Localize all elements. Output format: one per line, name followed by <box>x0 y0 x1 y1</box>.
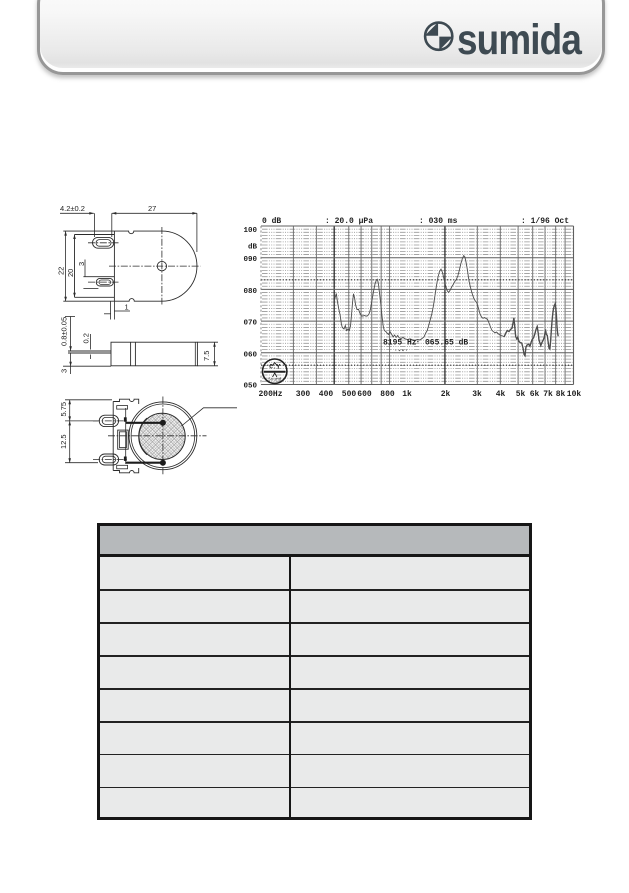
svg-text:20: 20 <box>66 269 75 277</box>
svg-text:400: 400 <box>319 390 334 399</box>
svg-text:7k: 7k <box>543 390 553 399</box>
svg-text:1: 1 <box>125 303 129 312</box>
svg-text:600: 600 <box>357 390 372 399</box>
svg-text:500: 500 <box>342 390 357 399</box>
svg-text:080: 080 <box>243 288 257 296</box>
svg-text:800: 800 <box>380 390 395 399</box>
svg-text:0.8±0.05: 0.8±0.05 <box>60 317 69 346</box>
svg-text:065.65 dB: 065.65 dB <box>425 339 468 348</box>
svg-text:: 1/96 Oct: : 1/96 Oct <box>521 217 569 226</box>
svg-text:10k: 10k <box>567 390 582 399</box>
svg-text:22: 22 <box>57 267 66 275</box>
svg-text:12.5: 12.5 <box>59 434 68 449</box>
svg-text:: 20.0 μPa: : 20.0 μPa <box>325 217 373 226</box>
svg-text:27: 27 <box>148 204 156 213</box>
svg-text:: 030 ms: : 030 ms <box>419 217 458 226</box>
svg-text:090: 090 <box>243 256 257 264</box>
svg-text:·˞˞·: ·˞˞· <box>394 347 408 354</box>
svg-text:C.Y: C.Y <box>269 364 280 371</box>
svg-text:070: 070 <box>243 320 257 328</box>
svg-text:8k: 8k <box>556 390 566 399</box>
svg-text:1k: 1k <box>402 390 412 399</box>
svg-text:100: 100 <box>243 227 257 235</box>
svg-text:5k: 5k <box>516 390 526 399</box>
svg-text:dB: dB <box>248 244 258 252</box>
svg-text:Sound: Sound <box>268 377 282 383</box>
svg-text:3: 3 <box>77 262 86 266</box>
svg-text:2k: 2k <box>441 390 451 399</box>
svg-text:4.2±0.2: 4.2±0.2 <box>60 204 85 213</box>
svg-text:300: 300 <box>296 390 311 399</box>
svg-text:3k: 3k <box>472 390 482 399</box>
svg-text:0 dB: 0 dB <box>262 217 281 226</box>
svg-text:7.5: 7.5 <box>202 351 211 361</box>
svg-text:3: 3 <box>60 369 69 373</box>
svg-text:200Hz: 200Hz <box>258 390 282 399</box>
svg-text:6k: 6k <box>530 390 540 399</box>
svg-text:050: 050 <box>243 383 257 391</box>
svg-text:0.2: 0.2 <box>82 333 91 343</box>
svg-text:4k: 4k <box>496 390 506 399</box>
svg-text:5.75: 5.75 <box>59 402 68 417</box>
svg-text:060: 060 <box>243 351 257 359</box>
